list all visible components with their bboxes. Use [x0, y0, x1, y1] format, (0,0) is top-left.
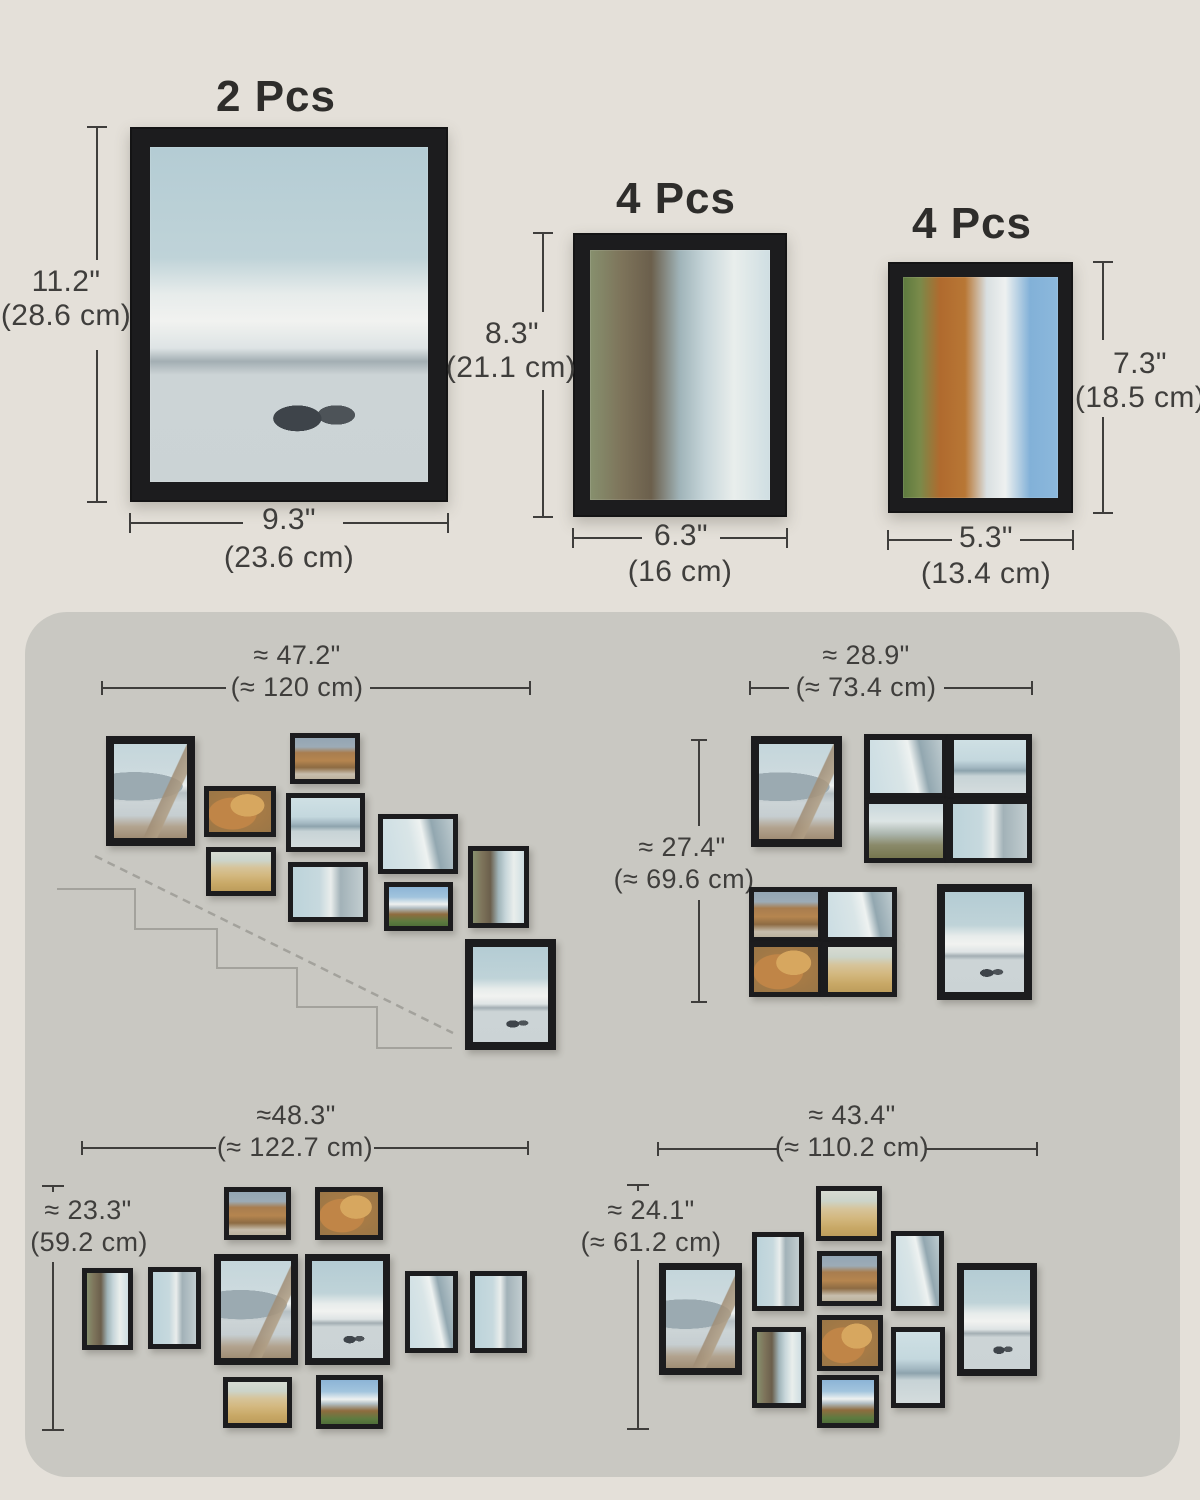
- frame-photo-dock: [759, 744, 834, 839]
- frame-photo-grass: [228, 1382, 287, 1423]
- small-frame-width-cm: (13.4 cm): [921, 558, 1051, 590]
- wide-diamond-layout-width-cm: (≈ 122.7 cm): [217, 1133, 373, 1162]
- frame-photo-sailboats: [473, 947, 548, 1042]
- gallery-frame-two-block: [749, 942, 823, 997]
- gallery-frame-wide-diamond: [82, 1268, 133, 1350]
- frame-photo-grass: [828, 947, 892, 992]
- frame-photo-grass: [821, 1191, 877, 1236]
- gallery-frame-diamond: [891, 1327, 945, 1408]
- gallery-frame-two-block: [749, 887, 823, 942]
- gallery-frame-diamond: [891, 1231, 944, 1311]
- gallery-frame-diamond: [817, 1251, 882, 1306]
- display-frame-medium: [573, 233, 787, 517]
- display-frame-small: [888, 262, 1073, 513]
- frame-photo-marsh: [869, 804, 943, 858]
- gallery-frame-diamond: [817, 1315, 883, 1371]
- gallery-frame-diamond: [816, 1186, 882, 1241]
- two-block-layout-height-cm: (≈ 69.6 cm): [614, 865, 755, 894]
- gallery-frame-two-block: [864, 734, 948, 799]
- gallery-frame-two-block: [948, 734, 1032, 799]
- medium-frame-height-cm: (21.1 cm): [446, 352, 576, 384]
- frame-photo-dock: [666, 1270, 735, 1368]
- large-frame-height-cm: (28.6 cm): [1, 300, 131, 332]
- gallery-frame-two-block: [823, 887, 897, 942]
- gallery-frame-staircase: [378, 814, 458, 874]
- frame-photo-lake-mist: [954, 740, 1026, 793]
- frame-photo-mountain-rotated: [903, 277, 1058, 498]
- frame-photo-autumn-hill: [754, 892, 818, 937]
- diamond-layout-width-inches: ≈ 43.4": [808, 1101, 895, 1130]
- frame-photo-shore-rot: [293, 867, 363, 917]
- frame-photo-ice-rot: [410, 1276, 453, 1348]
- gallery-frame-diamond: [659, 1263, 742, 1375]
- gallery-frame-staircase: [384, 882, 453, 931]
- staircase-layout-width-inches: ≈ 47.2": [253, 641, 340, 670]
- gallery-frame-wide-diamond: [214, 1254, 298, 1365]
- gallery-frame-wide-diamond: [223, 1377, 292, 1428]
- frame-photo-sailboats: [312, 1261, 383, 1358]
- frame-photo-sailboats: [945, 892, 1024, 992]
- small-frame-height-cm: (18.5 cm): [1075, 382, 1200, 414]
- frame-photo-mountain-snow: [822, 1380, 874, 1423]
- frame-photo-leaves: [320, 1192, 378, 1235]
- gallery-frame-diamond: [817, 1375, 879, 1428]
- frame-photo-lake-rot: [87, 1273, 128, 1345]
- frame-photo-sailboats: [150, 147, 428, 482]
- large-frame-width-inches: 9.3": [262, 504, 316, 536]
- gallery-frame-wide-diamond: [405, 1271, 458, 1353]
- gallery-frame-staircase: [290, 733, 360, 784]
- small-frame-width-inches: 5.3": [959, 522, 1013, 554]
- gallery-frame-staircase: [204, 786, 276, 837]
- frame-photo-ice-rot: [828, 892, 892, 937]
- gallery-frame-staircase: [106, 736, 195, 846]
- frame-photo-shore-rot: [757, 1237, 799, 1306]
- large-frame-height-inches: 11.2": [32, 266, 101, 298]
- medium-frame-width-cm: (16 cm): [628, 556, 732, 588]
- gallery-frame-wide-diamond: [470, 1271, 527, 1353]
- gallery-frame-wide-diamond: [315, 1187, 383, 1240]
- frame-photo-ice-rot: [383, 819, 453, 869]
- two-block-layout-width-inches: ≈ 28.9": [822, 641, 909, 670]
- frame-photo-shore-rot: [953, 804, 1027, 858]
- frame-photo-lake-rot: [757, 1332, 801, 1403]
- frame-photo-lake-mist: [291, 798, 360, 847]
- gallery-frame-wide-diamond: [148, 1267, 201, 1349]
- wide-diamond-layout-height-inches: ≈ 23.3": [44, 1196, 131, 1225]
- small-frame-height-inches: 7.3": [1113, 348, 1167, 380]
- frame-photo-leaves: [754, 947, 818, 992]
- gallery-frame-staircase: [286, 793, 365, 852]
- gallery-frame-two-block: [937, 884, 1032, 1000]
- frame-photo-lake-rot: [473, 851, 524, 923]
- gallery-frame-wide-diamond: [305, 1254, 390, 1365]
- gallery-frame-staircase: [206, 847, 276, 896]
- gallery-frame-diamond: [752, 1327, 806, 1408]
- frame-photo-mountain-snow: [321, 1380, 378, 1424]
- frame-photo-autumn-hill: [295, 738, 355, 779]
- frame-photo-lake-rotated: [590, 250, 770, 500]
- frame-photo-autumn-hill: [822, 1256, 877, 1301]
- gallery-frame-two-block: [823, 942, 897, 997]
- diamond-layout-height-cm: (≈ 61.2 cm): [581, 1228, 722, 1257]
- frame-photo-grass: [211, 852, 271, 891]
- pcs-count-label-small: 4 Pcs: [912, 199, 1032, 249]
- frame-photo-ice-rot: [870, 740, 942, 793]
- display-frame-large: [130, 127, 448, 502]
- gallery-frame-two-block: [948, 799, 1032, 863]
- staircase-layout-width-cm: (≈ 120 cm): [231, 673, 364, 702]
- frame-photo-shore-rot: [475, 1276, 522, 1348]
- medium-frame-height-inches: 8.3": [485, 318, 539, 350]
- frame-photo-mountain-snow: [389, 887, 448, 926]
- wide-diamond-layout-height-cm: (59.2 cm): [30, 1228, 148, 1257]
- wide-diamond-layout-width-inches: ≈48.3": [256, 1101, 335, 1130]
- large-frame-width-cm: (23.6 cm): [224, 542, 354, 574]
- gallery-frame-wide-diamond: [316, 1375, 383, 1429]
- frame-photo-leaves: [822, 1320, 878, 1366]
- frame-photo-autumn-hill: [229, 1192, 286, 1235]
- frame-photo-leaves: [209, 791, 271, 832]
- medium-frame-width-inches: 6.3": [654, 520, 708, 552]
- two-block-layout-width-cm: (≈ 73.4 cm): [796, 673, 937, 702]
- gallery-frame-diamond: [752, 1232, 804, 1311]
- gallery-frame-two-block: [864, 799, 948, 863]
- gallery-frame-wide-diamond: [224, 1187, 291, 1240]
- frame-photo-sailboats: [964, 1270, 1030, 1369]
- two-block-layout-height-inches: ≈ 27.4": [638, 833, 725, 862]
- pcs-count-label-medium: 4 Pcs: [616, 174, 736, 224]
- frame-photo-shore-rot: [153, 1272, 196, 1344]
- diamond-layout-width-cm: (≈ 110.2 cm): [775, 1133, 929, 1162]
- gallery-frame-two-block: [751, 736, 842, 847]
- gallery-frame-diamond: [957, 1263, 1037, 1376]
- frame-set-infographic: 2 Pcs 11.2" (28.6 cm) 9.3" (23.6 cm) 4 P…: [0, 0, 1200, 1500]
- gallery-frame-staircase: [468, 846, 529, 928]
- gallery-frame-staircase: [465, 939, 556, 1050]
- frame-photo-dock: [221, 1261, 291, 1358]
- diamond-layout-height-inches: ≈ 24.1": [607, 1196, 694, 1225]
- frame-photo-dock: [114, 744, 187, 838]
- frame-photo-lake-mist: [896, 1332, 940, 1403]
- pcs-count-label-large: 2 Pcs: [216, 72, 336, 122]
- frame-photo-ice-rot: [896, 1236, 939, 1306]
- gallery-frame-staircase: [288, 862, 368, 922]
